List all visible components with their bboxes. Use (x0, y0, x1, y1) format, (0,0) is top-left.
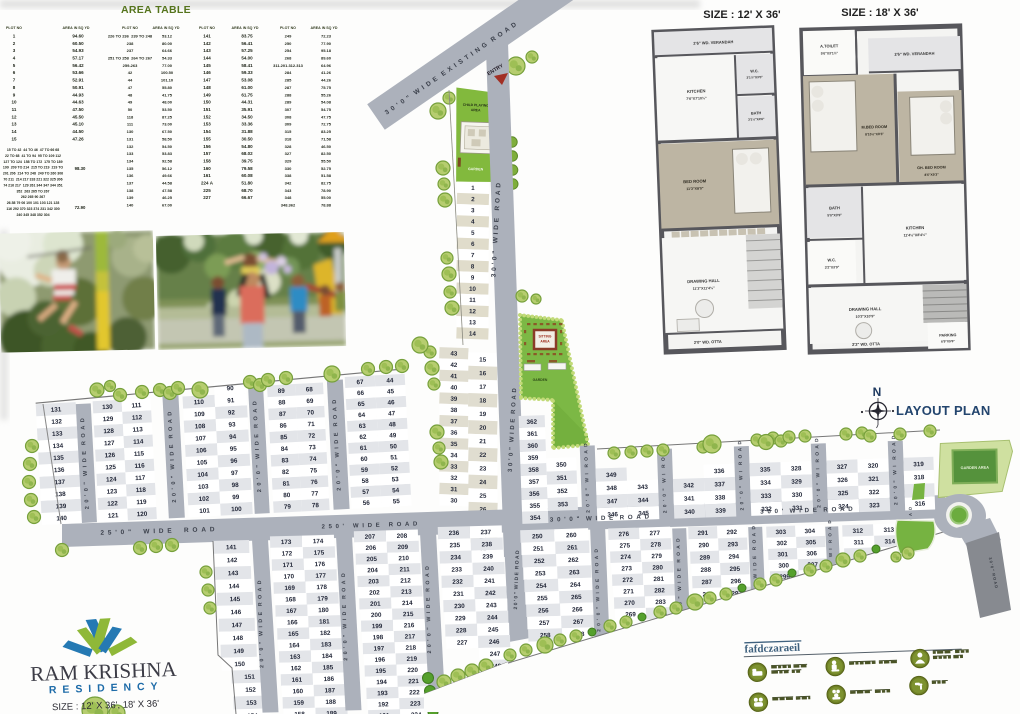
svg-text:3'1½"X4'6": 3'1½"X4'6" (748, 117, 765, 122)
svg-text:82: 82 (282, 469, 290, 476)
svg-text:205: 205 (366, 556, 377, 563)
svg-text:54.80: 54.80 (241, 144, 253, 149)
svg-text:101: 101 (199, 507, 210, 515)
svg-text:261: 261 (567, 544, 578, 551)
svg-text:233: 233 (451, 566, 462, 573)
svg-text:21: 21 (479, 438, 487, 445)
svg-text:56.41: 56.41 (241, 41, 253, 46)
svg-text:158: 158 (203, 158, 211, 163)
svg-text:143: 143 (228, 570, 239, 577)
svg-text:49: 49 (128, 100, 133, 105)
svg-text:SITTING: SITTING (538, 335, 551, 339)
svg-text:161: 161 (292, 677, 303, 684)
svg-text:155: 155 (203, 136, 211, 141)
svg-text:63: 63 (359, 423, 367, 430)
svg-text:23: 23 (479, 465, 487, 472)
svg-text:58: 58 (361, 478, 369, 485)
svg-text:45.50: 45.50 (72, 114, 84, 119)
svg-text:240 345 348 352 304: 240 345 348 352 304 (16, 213, 49, 217)
svg-text:146: 146 (231, 609, 242, 616)
svg-text:103: 103 (198, 483, 209, 491)
svg-text:GARDEN AREA: GARDEN AREA (961, 466, 990, 470)
svg-text:54: 54 (392, 487, 400, 494)
svg-text:237: 237 (127, 48, 134, 53)
svg-text:241: 241 (484, 578, 495, 585)
svg-text:148: 148 (232, 635, 243, 642)
svg-text:fafdczaraeil: fafdczaraeil (744, 642, 800, 656)
svg-text:97: 97 (231, 470, 239, 477)
svg-text:304: 304 (804, 528, 815, 535)
svg-text:113: 113 (132, 426, 143, 434)
svg-text:83.75: 83.75 (241, 34, 253, 39)
svg-text:95.18: 95.18 (321, 48, 332, 53)
svg-text:172: 172 (282, 550, 293, 557)
svg-text:133: 133 (127, 151, 134, 156)
svg-text:35: 35 (450, 441, 458, 448)
svg-text:94: 94 (229, 433, 237, 440)
svg-text:44.26: 44.26 (321, 78, 332, 83)
svg-text:169: 169 (284, 585, 295, 592)
svg-text:PLOT NO: PLOT NO (280, 26, 296, 30)
svg-text:45.10: 45.10 (72, 122, 84, 127)
svg-text:302: 302 (776, 540, 787, 547)
svg-text:14: 14 (11, 129, 17, 134)
svg-text:130: 130 (102, 404, 113, 412)
svg-text:354: 354 (530, 515, 541, 522)
svg-text:78.88: 78.88 (321, 203, 332, 208)
svg-text:167: 167 (286, 608, 297, 615)
svg-text:206: 206 (366, 545, 377, 552)
svg-text:163: 163 (290, 654, 301, 661)
svg-text:AREA IN SQ YD: AREA IN SQ YD (153, 26, 180, 30)
svg-text:95: 95 (230, 446, 238, 453)
svg-text:41.75: 41.75 (162, 92, 173, 97)
svg-text:140: 140 (127, 203, 134, 208)
svg-text:242: 242 (485, 590, 496, 597)
svg-text:W.C.: W.C. (750, 69, 758, 73)
svg-text:61.00: 61.00 (241, 85, 253, 90)
svg-text:341: 341 (684, 495, 695, 502)
svg-text:8'10½"X9'3": 8'10½"X9'3" (865, 132, 884, 137)
svg-text:356: 356 (529, 491, 540, 498)
svg-text:104: 104 (197, 471, 208, 479)
svg-text:78: 78 (312, 502, 320, 509)
svg-text:362: 362 (527, 419, 538, 426)
svg-text:68.70: 68.70 (241, 188, 253, 193)
svg-text:50.91: 50.91 (72, 85, 84, 90)
svg-text:220: 220 (407, 667, 418, 674)
svg-text:338: 338 (715, 494, 726, 501)
svg-text:127 TO 124 158 TO 172 175 TO: 127 TO 124 158 TO 172 175 TO 189 (3, 160, 62, 164)
svg-text:109: 109 (194, 411, 205, 419)
svg-text:50: 50 (390, 443, 398, 450)
svg-text:348.362: 348.362 (281, 203, 296, 208)
svg-text:56.12: 56.12 (162, 166, 173, 171)
svg-text:329: 329 (285, 158, 292, 163)
svg-text:10: 10 (469, 286, 477, 293)
svg-text:342: 342 (683, 482, 694, 489)
svg-text:91: 91 (227, 397, 235, 404)
svg-text:75.75: 75.75 (321, 85, 332, 90)
svg-text:187: 187 (324, 687, 335, 694)
svg-text:303: 303 (775, 529, 786, 536)
svg-text:2'3" WD. OTTA: 2'3" WD. OTTA (852, 341, 880, 347)
svg-text:69: 69 (306, 398, 314, 405)
svg-text:44.63: 44.63 (72, 100, 84, 105)
svg-text:116 292 370 323 374 231 342 30: 116 292 370 323 374 231 342 300 (6, 207, 59, 211)
svg-text:8'6"X9'3": 8'6"X9'3" (924, 173, 939, 177)
svg-text:15: 15 (479, 357, 487, 364)
svg-text:350: 350 (556, 462, 567, 469)
svg-text:146: 146 (203, 70, 211, 75)
svg-text:73.00: 73.00 (162, 122, 173, 127)
svg-text:337: 337 (714, 481, 725, 488)
svg-text:215: 215 (403, 611, 414, 618)
svg-text:149: 149 (233, 648, 244, 655)
svg-text:263: 263 (569, 569, 580, 576)
svg-text:10: 10 (11, 100, 17, 105)
svg-text:105: 105 (197, 459, 208, 467)
svg-text:131: 131 (127, 136, 134, 141)
svg-text:124: 124 (106, 476, 117, 484)
svg-text:47: 47 (388, 410, 396, 417)
svg-text:199: 199 (372, 623, 383, 630)
svg-text:244: 244 (487, 614, 498, 621)
svg-text:311.201.312.313: 311.201.312.313 (273, 63, 304, 68)
svg-text:118: 118 (127, 114, 134, 119)
svg-text:250: 250 (532, 533, 543, 540)
svg-text:193: 193 (377, 690, 388, 697)
svg-text:88: 88 (278, 399, 286, 406)
svg-text:48: 48 (389, 421, 397, 428)
svg-text:41: 41 (450, 373, 458, 380)
svg-text:53.12: 53.12 (162, 34, 173, 39)
svg-text:GARDEN: GARDEN (533, 378, 548, 382)
svg-text:11: 11 (12, 107, 17, 112)
svg-text:72.23: 72.23 (321, 34, 332, 39)
svg-text:60.50: 60.50 (72, 41, 84, 46)
svg-text:276: 276 (618, 531, 629, 538)
svg-text:289: 289 (699, 554, 710, 561)
svg-text:328: 328 (791, 465, 802, 472)
svg-text:75: 75 (310, 467, 318, 474)
svg-text:145: 145 (203, 63, 211, 68)
svg-text:279: 279 (651, 553, 662, 560)
svg-text:197: 197 (374, 645, 385, 652)
svg-text:160: 160 (203, 166, 211, 171)
svg-text:260: 260 (566, 532, 577, 539)
svg-text:106: 106 (196, 447, 207, 455)
svg-text:13: 13 (469, 319, 477, 326)
svg-text:KITCHEN: KITCHEN (687, 88, 706, 94)
svg-text:254: 254 (536, 583, 547, 590)
svg-text:305: 305 (805, 539, 816, 546)
svg-text:176: 176 (315, 561, 326, 568)
svg-text:164: 164 (289, 642, 300, 649)
svg-text:274: 274 (620, 554, 631, 561)
svg-text:66.67: 66.67 (241, 195, 253, 200)
svg-text:237: 237 (481, 529, 492, 536)
svg-text:203: 203 (368, 578, 379, 585)
svg-text:115: 115 (134, 450, 145, 458)
svg-text:62: 62 (359, 434, 367, 441)
svg-text:138: 138 (127, 188, 134, 193)
svg-text:308: 308 (285, 114, 292, 119)
svg-text:137: 137 (54, 479, 65, 487)
svg-text:83: 83 (281, 457, 289, 464)
svg-text:178: 178 (316, 584, 327, 591)
svg-text:AREA: AREA (471, 108, 481, 112)
svg-text:175: 175 (314, 550, 325, 557)
svg-text:114: 114 (133, 438, 144, 446)
svg-text:89.60: 89.60 (321, 56, 332, 61)
svg-text:125: 125 (105, 464, 116, 472)
svg-text:266: 266 (572, 606, 583, 613)
svg-text:60: 60 (360, 456, 368, 463)
svg-text:66: 66 (357, 390, 365, 397)
svg-text:42: 42 (450, 362, 458, 369)
svg-text:SIZE : 12' X 36': SIZE : 12' X 36' (703, 9, 781, 21)
svg-text:224 A: 224 A (201, 181, 214, 186)
svg-text:73: 73 (309, 444, 317, 451)
svg-text:101.10: 101.10 (161, 78, 174, 83)
svg-text:264: 264 (570, 582, 581, 589)
svg-text:108: 108 (195, 423, 206, 431)
svg-text:340: 340 (684, 509, 695, 516)
svg-text:26.58 79 06 100 101 103 121 12: 26.58 79 06 100 101 103 121 128 (7, 201, 60, 205)
svg-text:44.93: 44.93 (72, 92, 84, 97)
svg-text:30.50: 30.50 (241, 136, 253, 141)
svg-text:67.50: 67.50 (162, 129, 173, 134)
svg-text:18: 18 (479, 397, 487, 404)
svg-text:133: 133 (52, 430, 63, 438)
svg-text:54.08: 54.08 (321, 100, 332, 105)
svg-text:N: N (873, 385, 882, 399)
svg-text:284: 284 (285, 70, 292, 75)
svg-text:DRAWING HALL: DRAWING HALL (849, 306, 882, 312)
svg-text:227: 227 (203, 195, 211, 200)
svg-text:145: 145 (230, 596, 241, 603)
svg-text:210: 210 (398, 555, 409, 562)
svg-text:143: 143 (203, 48, 211, 53)
svg-text:157: 157 (203, 151, 211, 156)
svg-text:277: 277 (649, 530, 660, 537)
svg-text:152: 152 (245, 687, 256, 694)
svg-text:40: 40 (450, 384, 458, 391)
svg-text:54.00: 54.00 (241, 56, 253, 61)
svg-text:SIZE : 18' X 36': SIZE : 18' X 36' (841, 7, 919, 19)
svg-text:130: 130 (127, 129, 134, 134)
svg-text:122: 122 (107, 500, 118, 508)
svg-text:47: 47 (128, 85, 133, 90)
svg-text:239: 239 (482, 553, 493, 560)
svg-text:48.00: 48.00 (162, 100, 173, 105)
svg-text:12: 12 (469, 308, 477, 315)
svg-text:247: 247 (490, 651, 501, 658)
svg-text:293: 293 (727, 541, 738, 548)
svg-text:44: 44 (386, 377, 394, 384)
svg-text:87.25: 87.25 (162, 114, 173, 119)
svg-text:86: 86 (279, 422, 287, 429)
svg-text:327: 327 (837, 464, 848, 471)
svg-text:238: 238 (481, 541, 492, 548)
svg-text:201: 201 (370, 601, 381, 608)
svg-text:100.50: 100.50 (161, 70, 174, 75)
svg-text:49: 49 (389, 432, 397, 439)
svg-text:13: 13 (11, 122, 17, 127)
svg-text:342: 342 (285, 181, 292, 186)
svg-text:166: 166 (287, 619, 298, 626)
svg-text:70: 70 (307, 409, 315, 416)
svg-text:291: 291 (697, 530, 708, 537)
svg-text:BED ROOM: BED ROOM (683, 178, 707, 184)
svg-text:LAYOUT PLAN: LAYOUT PLAN (896, 403, 991, 418)
svg-text:306: 306 (806, 550, 817, 557)
svg-text:53.50: 53.50 (162, 107, 173, 112)
svg-text:271: 271 (623, 588, 634, 595)
svg-text:229: 229 (455, 615, 466, 622)
svg-text:57: 57 (362, 489, 370, 496)
svg-text:348: 348 (285, 195, 292, 200)
svg-text:142: 142 (227, 557, 238, 564)
svg-text:300: 300 (778, 562, 789, 569)
svg-text:168: 168 (285, 596, 296, 603)
svg-text:174: 174 (313, 538, 324, 545)
svg-text:67.00: 67.00 (162, 203, 173, 208)
svg-text:154: 154 (203, 129, 211, 134)
svg-text:52: 52 (391, 465, 399, 472)
svg-text:181: 181 (319, 618, 330, 625)
svg-text:318: 318 (914, 474, 925, 481)
svg-text:294: 294 (728, 553, 739, 560)
svg-text:351: 351 (556, 475, 567, 482)
svg-text:AREA TABLE: AREA TABLE (121, 4, 191, 16)
svg-text:328: 328 (285, 144, 292, 149)
svg-text:127: 127 (104, 440, 115, 448)
svg-text:162: 162 (291, 665, 302, 672)
svg-text:147: 147 (232, 622, 243, 629)
svg-text:33: 33 (450, 463, 458, 470)
svg-text:177: 177 (315, 572, 326, 579)
svg-text:49.66: 49.66 (162, 173, 173, 178)
svg-text:313: 313 (883, 527, 894, 534)
svg-text:59.33: 59.33 (241, 70, 253, 75)
svg-text:287: 287 (285, 85, 292, 90)
svg-text:135: 135 (127, 166, 134, 171)
svg-text:320: 320 (868, 463, 879, 470)
svg-text:GH. BED ROOM: GH. BED ROOM (917, 165, 946, 170)
svg-text:216: 216 (404, 622, 415, 629)
svg-text:322: 322 (869, 489, 880, 496)
svg-text:280: 280 (652, 564, 663, 571)
svg-text:48: 48 (128, 92, 133, 97)
svg-text:107: 107 (195, 435, 206, 443)
svg-text:344: 344 (638, 497, 649, 504)
svg-text:55.00: 55.00 (321, 195, 332, 200)
svg-text:121: 121 (108, 512, 119, 520)
svg-text:92: 92 (228, 409, 236, 416)
svg-text:151: 151 (244, 674, 255, 681)
svg-text:188: 188 (325, 699, 336, 706)
svg-text:45: 45 (387, 388, 395, 395)
svg-text:47.58: 47.58 (162, 188, 173, 193)
svg-text:71: 71 (307, 421, 315, 428)
svg-text:225: 225 (203, 188, 211, 193)
svg-text:149: 149 (203, 92, 211, 97)
svg-text:251: 251 (533, 545, 544, 552)
svg-text:199 209 TO 214 215 TO 219 2: 199 209 TO 214 215 TO 219 219 TO (3, 166, 63, 170)
svg-text:70 211 214 217 318 221 322 32: 70 211 214 217 318 221 322 325 306 (3, 178, 62, 182)
svg-text:81: 81 (283, 480, 291, 487)
svg-text:79: 79 (284, 503, 292, 510)
svg-text:278: 278 (650, 541, 661, 548)
svg-text:96: 96 (230, 458, 238, 465)
svg-text:325: 325 (838, 490, 849, 497)
svg-text:AREA IN SQ YD: AREA IN SQ YD (63, 26, 90, 30)
svg-text:267: 267 (573, 619, 584, 626)
svg-text:20: 20 (479, 425, 487, 432)
svg-text:222: 222 (409, 689, 420, 696)
svg-text:56.42: 56.42 (72, 63, 84, 68)
svg-text:243: 243 (486, 602, 497, 609)
svg-text:185: 185 (323, 664, 334, 671)
svg-text:208: 208 (397, 533, 408, 540)
svg-text:PARKING: PARKING (939, 333, 956, 337)
svg-text:44.50: 44.50 (72, 129, 84, 134)
svg-text:275: 275 (619, 542, 630, 549)
svg-text:98: 98 (232, 482, 240, 489)
svg-text:55.80: 55.80 (162, 85, 173, 90)
svg-text:137: 137 (127, 181, 134, 186)
svg-text:46.25: 46.25 (162, 195, 173, 200)
svg-text:156: 156 (203, 144, 211, 149)
svg-text:50: 50 (128, 107, 133, 112)
svg-text:51.58: 51.58 (321, 173, 332, 178)
svg-text:141: 141 (203, 34, 211, 39)
svg-text:139: 139 (56, 503, 67, 511)
svg-text:353: 353 (557, 501, 568, 508)
svg-text:36: 36 (450, 430, 458, 437)
svg-text:357: 357 (529, 479, 540, 486)
svg-text:358: 358 (528, 467, 539, 474)
svg-text:92.58: 92.58 (162, 158, 173, 163)
svg-text:355: 355 (529, 503, 540, 510)
svg-text:54.50: 54.50 (162, 144, 173, 149)
svg-text:186: 186 (324, 676, 335, 683)
svg-text:183: 183 (321, 641, 332, 648)
svg-text:25: 25 (479, 493, 487, 500)
svg-text:110: 110 (194, 399, 205, 407)
svg-text:255: 255 (537, 595, 548, 602)
svg-text:184: 184 (322, 653, 333, 660)
svg-text:343: 343 (285, 188, 292, 193)
svg-text:78.90: 78.90 (321, 188, 332, 193)
svg-text:343: 343 (637, 484, 648, 491)
svg-text:68: 68 (306, 386, 314, 393)
svg-text:41.26: 41.26 (321, 70, 332, 75)
svg-text:46.50: 46.50 (321, 144, 332, 149)
svg-text:76: 76 (310, 479, 318, 486)
svg-text:116: 116 (134, 462, 145, 470)
svg-text:89: 89 (278, 388, 286, 395)
svg-text:52.75: 52.75 (321, 166, 332, 171)
svg-text:7'6"X7'10½": 7'6"X7'10½" (686, 96, 707, 101)
svg-text:59: 59 (361, 467, 369, 474)
svg-text:139: 139 (127, 195, 134, 200)
svg-text:262 265 90 267: 262 265 90 267 (21, 195, 45, 199)
svg-text:134: 134 (127, 158, 134, 163)
svg-text:194: 194 (376, 679, 387, 686)
